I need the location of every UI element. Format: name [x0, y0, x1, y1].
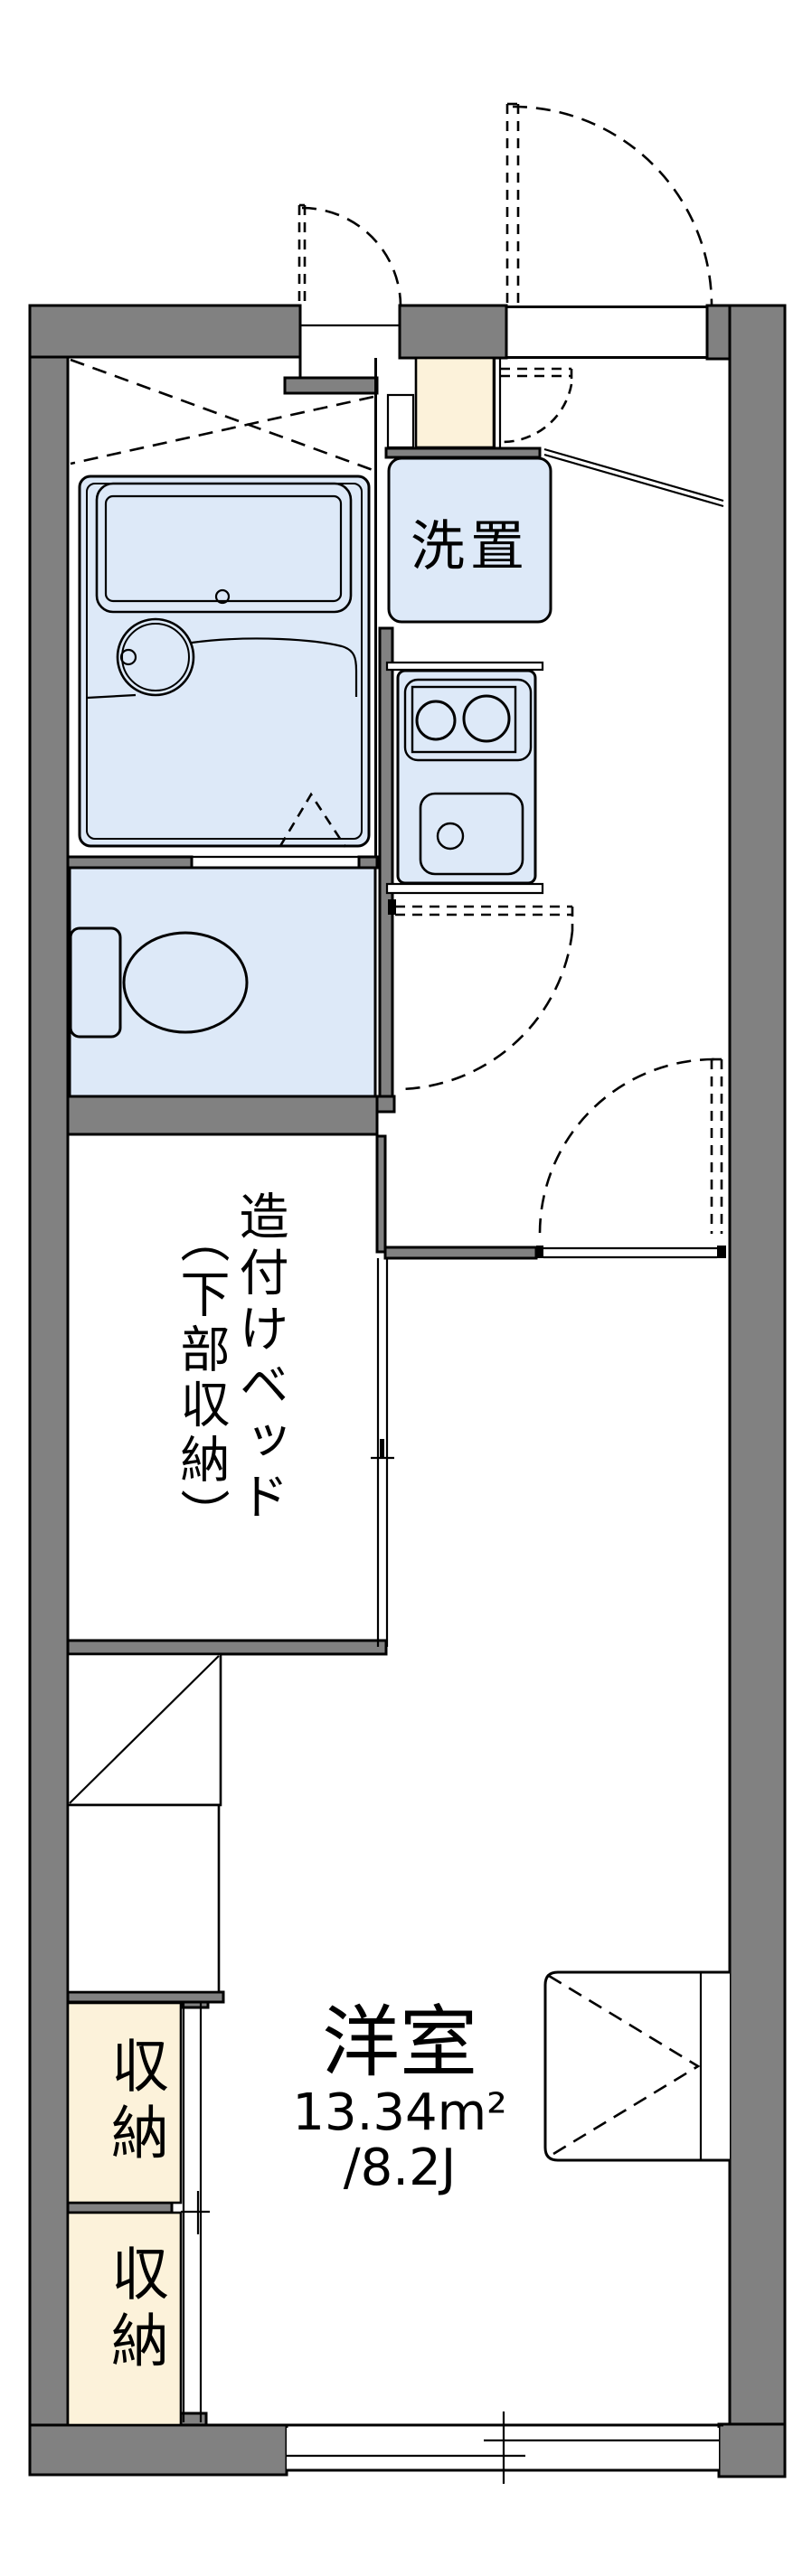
wall-toilet-bottom	[68, 1096, 377, 1134]
wall-top-left	[30, 306, 300, 357]
wall-left	[30, 306, 68, 2475]
bathroom	[71, 360, 375, 868]
niche-door-swing	[299, 205, 401, 306]
bedroom-door-jamb-right	[717, 1246, 726, 1258]
toilet-floor	[70, 868, 375, 1096]
wall-closet-top-notch	[183, 2002, 208, 2007]
storage-upper-label: 収納	[93, 2035, 176, 2169]
wall-bathroom-right-line	[374, 358, 377, 857]
wall-bottom-left	[30, 2425, 287, 2475]
wall-top-mid	[400, 306, 506, 358]
washer-label: 洗置	[389, 503, 552, 581]
shoe-cabinet	[416, 358, 494, 447]
wall-kitchen-partition	[380, 628, 392, 1096]
wall-bed-right	[377, 1136, 385, 1252]
bed-lower-box	[68, 1805, 219, 1992]
kitchen-counter-bottom-edge	[387, 884, 543, 893]
kitchen-counter-top-edge	[387, 663, 543, 670]
bedroom-door-swing	[540, 1059, 722, 1234]
western-room-label-block: 洋室 13.34m² /8.2J	[278, 1999, 522, 2195]
wall-washer-top	[386, 448, 540, 457]
bed-partition-mark	[380, 1439, 384, 1458]
wall-closet-top	[68, 1992, 223, 2002]
bedroom-door-jamb-left	[536, 1246, 543, 1258]
entry-side-box	[388, 395, 413, 447]
bottom-window	[280, 2411, 723, 2484]
wall-bottom-right-corner	[719, 2424, 785, 2477]
kitchen	[387, 663, 572, 1089]
built-in-bed-label-line2: （下部収納）	[165, 1213, 237, 1544]
wall-bed-bottom	[68, 1641, 386, 1654]
wall-bottom-tab	[181, 2413, 206, 2425]
bathroom-x-line-2	[71, 397, 373, 464]
western-room-area-tatami: /8.2J	[278, 2141, 522, 2195]
shoe-cabinet-door-swing	[500, 369, 571, 442]
wall-bath-toilet	[68, 857, 192, 868]
wall-hall-stub	[385, 1247, 536, 1258]
western-room-area-sqm: 13.34m²	[278, 2086, 522, 2140]
toilet-room	[70, 868, 375, 1096]
wall-bath-toilet-jamb	[359, 857, 377, 868]
wall-entry-niche-bottom	[285, 378, 377, 393]
kitchen-door-jamb	[388, 899, 396, 915]
exterior-door-swings	[299, 104, 712, 306]
entry-step-line-1	[544, 449, 723, 501]
storage-lower-label: 収納	[93, 2243, 176, 2377]
wall-toilet-bottom-block	[377, 1096, 394, 1112]
floorplan-canvas: 洗置 造付けベッド （下部収納） 洋室 13.34m² /8.2J 収納 収納	[0, 0, 812, 2576]
entry-step-line-2	[544, 455, 723, 506]
side-window-unit	[545, 1972, 730, 2160]
wall-right	[730, 306, 785, 2477]
western-room-name: 洋室	[278, 1999, 522, 2086]
bedroom-door	[536, 1059, 726, 1258]
wall-closet-separator	[68, 2203, 172, 2213]
entry-door-swing	[507, 104, 712, 306]
kitchen-door-swing	[395, 907, 572, 1089]
